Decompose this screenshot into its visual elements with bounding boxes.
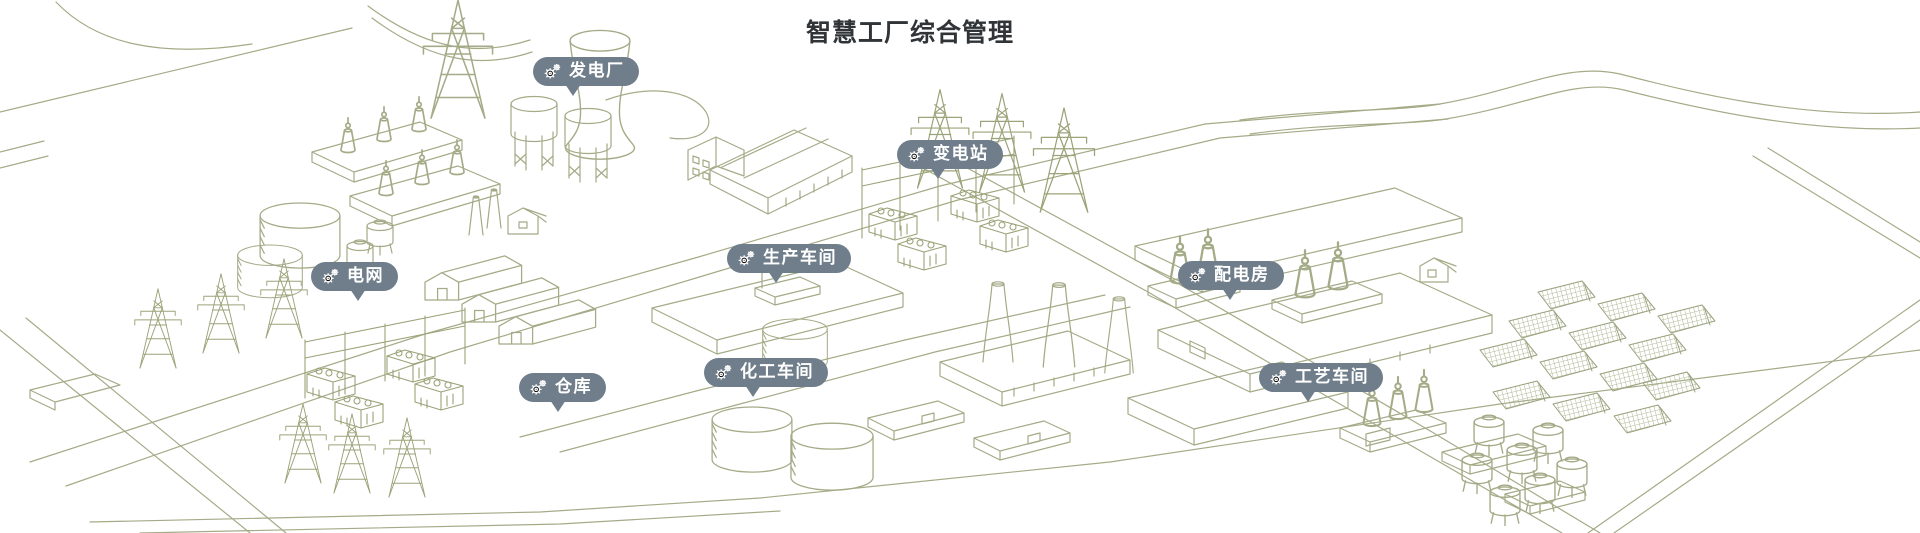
- pin-label: 化工车间: [740, 364, 814, 381]
- gears-icon: [544, 63, 562, 80]
- gears-icon: [738, 250, 756, 267]
- solar-panel-field-drawing: [1480, 281, 1715, 433]
- map-pin-process-workshop[interactable]: 工艺车间: [1259, 363, 1383, 392]
- distribution-building-drawing: [1135, 188, 1462, 323]
- gears-icon: [908, 146, 926, 163]
- map-pin-power-grid[interactable]: 电网: [311, 262, 398, 291]
- gears-icon: [715, 364, 733, 381]
- page-title: 智慧工厂综合管理: [806, 13, 1014, 49]
- gears-icon: [1270, 369, 1288, 386]
- boiler-house-drawing: [469, 189, 546, 235]
- pin-label: 电网: [347, 268, 384, 285]
- map-pin-distribution-room[interactable]: 配电房: [1178, 261, 1284, 290]
- map-pin-production-workshop[interactable]: 生产车间: [727, 244, 851, 273]
- grid-yard-drawing: [135, 259, 465, 497]
- storage-tanks-left-drawing: [30, 203, 393, 410]
- production-building-drawing: [688, 128, 852, 214]
- gears-icon: [322, 268, 340, 285]
- factory-site-illustration: [0, 0, 1920, 533]
- pin-label: 生产车间: [763, 250, 837, 267]
- pin-label: 工艺车间: [1295, 369, 1369, 386]
- smart-factory-map: 智慧工厂综合管理 发电厂 变电站 电网 生产车间 配电房 仓库 化工车间 工艺车…: [0, 0, 1920, 533]
- gears-icon: [1189, 267, 1207, 284]
- gears-icon: [530, 379, 548, 396]
- map-pin-power-plant[interactable]: 发电厂: [533, 57, 639, 86]
- map-pin-chemical-workshop[interactable]: 化工车间: [704, 358, 828, 387]
- hoppers-drawing: [1462, 415, 1587, 525]
- map-pin-warehouse[interactable]: 仓库: [519, 373, 606, 402]
- power-plant-drawing: [312, 0, 635, 226]
- pin-label: 变电站: [933, 146, 989, 163]
- pin-label: 配电房: [1214, 267, 1270, 284]
- pin-label: 发电厂: [569, 63, 625, 80]
- pin-label: 仓库: [555, 379, 592, 396]
- warehouse-sheds-drawing: [425, 256, 596, 344]
- map-pin-substation[interactable]: 变电站: [897, 140, 1003, 169]
